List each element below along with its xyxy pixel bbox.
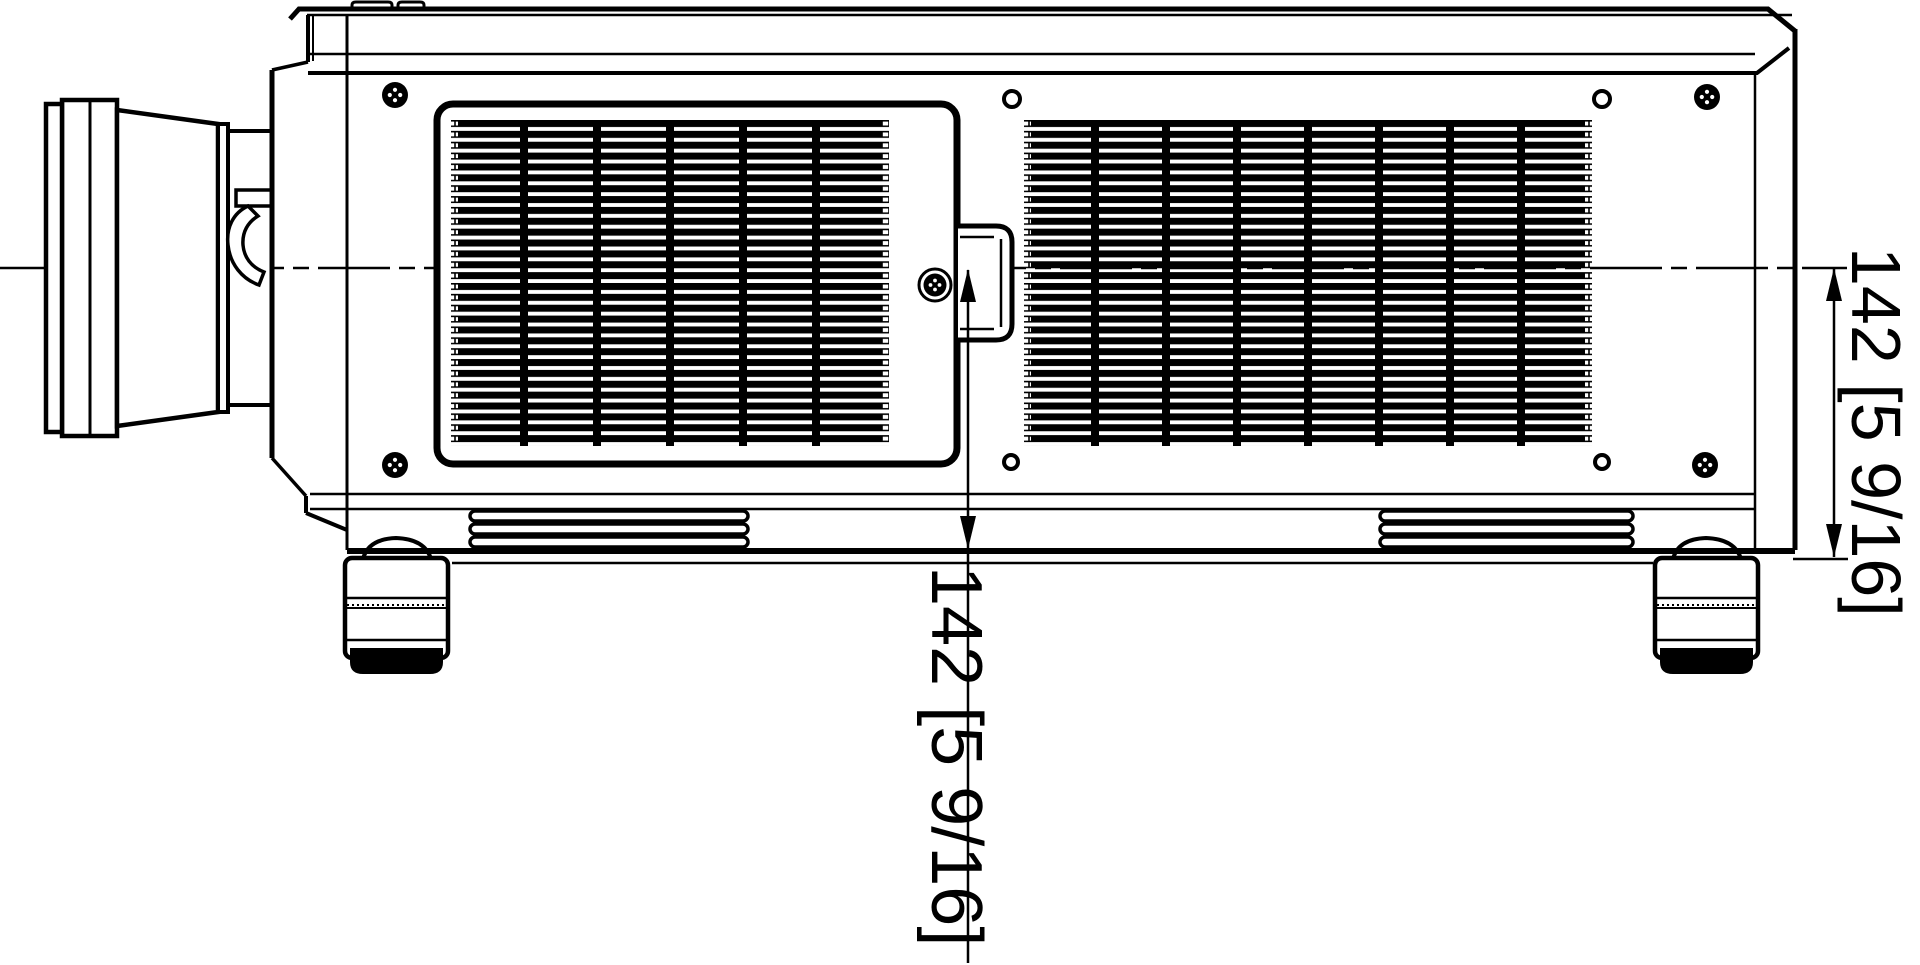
bottom-vent-slots-right bbox=[1380, 511, 1633, 547]
corner-screw bbox=[1692, 452, 1718, 478]
dimension-arrow-down bbox=[960, 516, 976, 549]
dimension-label-mid: 142 [5 9/16] bbox=[916, 566, 996, 946]
lens-front-cap bbox=[46, 104, 62, 432]
grille-screw-hole bbox=[1004, 91, 1020, 107]
lens-cone bbox=[117, 110, 218, 426]
corner-screw bbox=[382, 82, 408, 108]
adjustable-foot-front bbox=[345, 538, 448, 674]
center-screw bbox=[919, 269, 951, 301]
exhaust-grille-right bbox=[1004, 91, 1610, 469]
drawing-canvas: 142 [5 9/16] 142 [5 9/16] bbox=[0, 0, 1920, 965]
dimension-line-right: 142 [5 9/16] bbox=[1793, 247, 1915, 617]
grille-screw-hole bbox=[1594, 91, 1610, 107]
corner-screw bbox=[1694, 84, 1720, 110]
bottom-vent-slots-left bbox=[470, 511, 748, 547]
grille-screw-hole bbox=[1595, 455, 1609, 469]
dimension-label-right: 142 [5 9/16] bbox=[1837, 247, 1915, 617]
front-bezel bbox=[272, 14, 347, 550]
lens-assembly bbox=[46, 100, 272, 436]
intake-grille-left bbox=[437, 104, 957, 464]
projector-side-view-drawing: 142 [5 9/16] 142 [5 9/16] bbox=[0, 0, 1920, 965]
grille-screw-hole bbox=[1004, 455, 1018, 469]
top-cover-seams bbox=[308, 48, 1789, 73]
corner-screw bbox=[382, 452, 408, 478]
adjustable-foot-rear bbox=[1655, 538, 1758, 674]
